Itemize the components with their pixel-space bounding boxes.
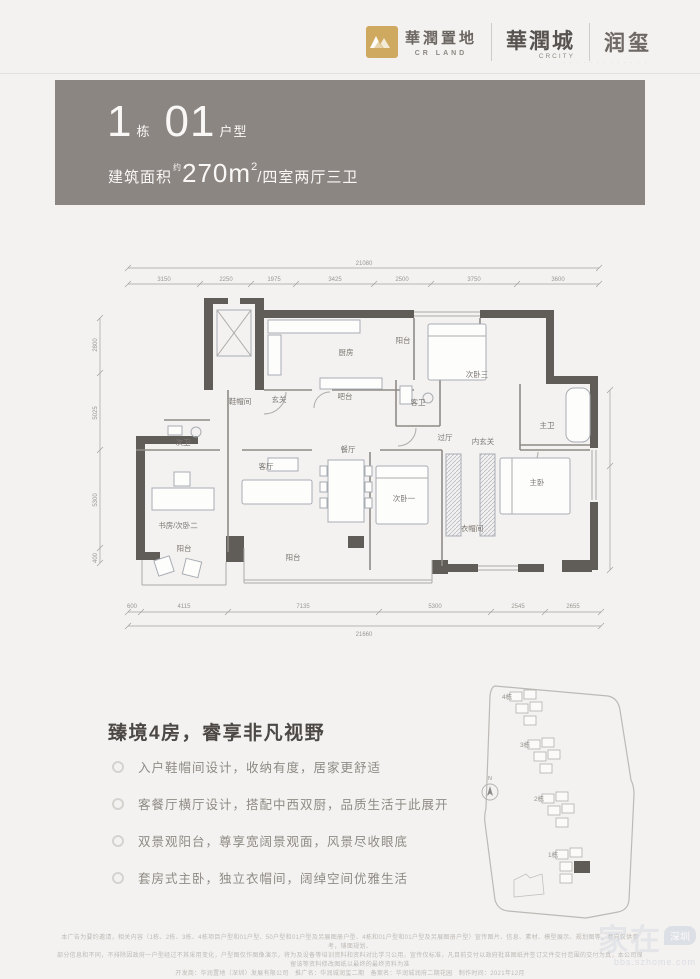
svg-text:5300: 5300 <box>93 493 99 507</box>
room-guest-bath: 客卫 <box>411 397 426 407</box>
feature-text: 入户鞋帽间设计，收纳有度，居家更舒适 <box>138 757 381 776</box>
unit-label: 户型 <box>219 121 247 140</box>
svg-text:2655: 2655 <box>566 604 580 610</box>
walls <box>136 298 598 574</box>
feature-text: 客餐厅横厅设计，搭配中西双厨，品质生活于此展开 <box>138 794 449 813</box>
feature-text: 套房式主卧，独立衣帽间，阔绰空间优雅生活 <box>138 868 408 887</box>
room-second-bath: 次卫 <box>176 437 191 447</box>
site-boundary <box>485 686 634 918</box>
svg-text:2250: 2250 <box>219 277 233 283</box>
unit-number: 01 <box>165 100 216 144</box>
svg-text:2500: 2500 <box>395 277 409 283</box>
room-cloakroom: 衣帽间 <box>461 523 484 533</box>
room-foyer: 玄关 <box>272 394 287 404</box>
siteplan-map: 4栋 3栋 2栋 1栋 N <box>468 668 653 930</box>
svg-text:5300: 5300 <box>428 604 442 610</box>
svg-text:3425: 3425 <box>328 277 342 283</box>
feature-item: 双景观阳台，尊享宽阔景观面，风景尽收眼底 <box>112 831 449 850</box>
room-bedroom1: 次卧一 <box>393 493 416 503</box>
crland-name-en: CR LAND <box>415 50 468 57</box>
svg-text:400: 400 <box>93 552 99 563</box>
fine-print-line: 开发商：华润置地（深圳）发展有限公司 推广名：华润城润玺二期 备案名：华润城润府… <box>55 970 645 979</box>
site-amenity-outline <box>514 874 544 897</box>
room-shoe-room: 鞋帽间 <box>229 396 252 406</box>
ring-bullet-icon <box>112 798 124 810</box>
room-living: 客厅 <box>259 461 274 471</box>
szhome-watermark: 家在深圳 bbs.szhome.com <box>598 926 696 967</box>
dimension-left: 2800 5025 5300 400 <box>93 315 103 566</box>
fine-print-line: 本广告为要约邀请，相关内容（1栋、2栋、3栋、4栋项目户型和01户型、50户型和… <box>55 934 645 952</box>
unit-header-band: 1 栋 01 户型 建筑面积 约 270m 2 /四室两厅三卫 <box>55 80 645 205</box>
svg-text:3600: 3600 <box>551 277 565 283</box>
runxi-logo: 润玺 <box>604 27 652 57</box>
area-value: 270m <box>182 160 251 186</box>
watermark-url: bbs.szhome.com <box>598 957 696 967</box>
room-inner-foyer: 内玄关 <box>472 436 495 446</box>
svg-text:3150: 3150 <box>157 277 171 283</box>
highlighted-unit-marker <box>574 861 590 873</box>
ring-bullet-icon <box>112 872 124 884</box>
legal-fine-print: 本广告为要约邀请，相关内容（1栋、2栋、3栋、4栋项目户型和01户型、50户型和… <box>55 934 645 979</box>
building-label: 栋 <box>136 121 150 140</box>
ring-bullet-icon <box>112 835 124 847</box>
room-balcony-bottom: 阳台 <box>286 552 301 562</box>
room-dining: 餐厅 <box>341 445 356 454</box>
svg-text:4115: 4115 <box>178 604 192 610</box>
svg-text:1975: 1975 <box>267 277 281 283</box>
svg-text:2800: 2800 <box>93 338 99 352</box>
site-building-4-label: 4栋 <box>502 692 513 701</box>
unit-area-line: 建筑面积 约 270m 2 /四室两厅三卫 <box>108 160 358 187</box>
header-divider-line <box>0 73 700 74</box>
crland-logo: 華潤置地 CR LAND <box>366 26 477 58</box>
crcity-logo: 華潤城 CRCITY <box>506 25 575 60</box>
site-building-1-label: 1栋 <box>548 850 559 859</box>
site-building-2-label: 2栋 <box>534 794 545 803</box>
dimension-top: 21080 3150 2250 1975 3425 2500 3750 3600 <box>125 261 602 287</box>
dimension-right <box>607 387 613 573</box>
svg-text:7135: 7135 <box>296 604 310 610</box>
svg-text:600: 600 <box>127 604 138 610</box>
svg-text:21660: 21660 <box>356 632 373 638</box>
building-number: 1 <box>107 100 132 144</box>
watermark-main-text: 家在 <box>598 924 662 957</box>
crcity-name-cn: 華潤城 <box>506 25 575 55</box>
crcity-name-en: CRCITY <box>539 53 575 60</box>
logo-divider <box>589 23 590 61</box>
area-approx-mark: 约 <box>173 160 181 173</box>
svg-text:3750: 3750 <box>467 277 481 283</box>
svg-text:N: N <box>488 776 492 782</box>
crland-logo-icon <box>366 26 398 58</box>
svg-text:5025: 5025 <box>93 406 99 420</box>
room-kitchen: 厨房 <box>339 347 354 357</box>
ring-bullet-icon <box>112 761 124 773</box>
site-building-3 <box>528 738 560 773</box>
room-balcony-top: 阳台 <box>396 335 411 345</box>
furniture <box>152 310 590 578</box>
logo-divider <box>491 23 492 61</box>
feature-item: 客餐厅横厅设计，搭配中西双厨，品质生活于此展开 <box>112 794 449 813</box>
compass-north-icon: N <box>482 776 498 800</box>
room-hall: 过厅 <box>438 432 453 442</box>
fine-print-line: 部分信息和不同，不排除因政府一户型经过不其采用变化，户型图仅作图像演示，将为及设… <box>55 952 645 970</box>
room-master-bedroom: 主卧 <box>530 477 545 487</box>
room-balcony-left: 阳台 <box>177 543 192 553</box>
site-building-3-label: 3栋 <box>520 740 531 749</box>
site-building-4 <box>510 690 542 725</box>
brand-tagline: ∙ ∙ ∙ ∙ ∙ ∙ ∙ ∙ ∙ ∙ ∙ ∙ ∙ <box>563 60 648 66</box>
floorplan-drawing: 21080 3150 2250 1975 3425 2500 3750 3600… <box>80 240 620 660</box>
feature-item: 套房式主卧，独立衣帽间，阔绰空间优雅生活 <box>112 868 449 887</box>
feature-item: 入户鞋帽间设计，收纳有度，居家更舒适 <box>112 757 449 776</box>
svg-text:2545: 2545 <box>511 604 525 610</box>
room-bar: 吧台 <box>338 391 353 401</box>
svg-text:21080: 21080 <box>356 261 373 267</box>
unit-title: 1 栋 01 户型 <box>107 100 261 144</box>
crland-name-cn: 華潤置地 <box>405 27 477 48</box>
watermark-badge: 深圳 <box>664 926 696 945</box>
room-master-bath: 主卫 <box>540 420 555 430</box>
dimension-bottom: 600 4115 7135 5300 2545 2655 21660 <box>125 604 604 638</box>
room-study: 书房/次卧二 <box>158 520 198 530</box>
room-count-label: /四室两厅三卫 <box>257 166 358 187</box>
room-bedroom3: 次卧三 <box>466 369 489 379</box>
feature-list: 入户鞋帽间设计，收纳有度，居家更舒适 客餐厅横厅设计，搭配中西双厨，品质生活于此… <box>112 757 449 887</box>
marketing-headline: 臻境4房，睿享非凡视野 <box>108 718 325 745</box>
feature-text: 双景观阳台，尊享宽阔景观面，风景尽收眼底 <box>138 831 408 850</box>
site-building-2 <box>542 792 574 827</box>
area-prefix: 建筑面积 <box>108 166 172 187</box>
